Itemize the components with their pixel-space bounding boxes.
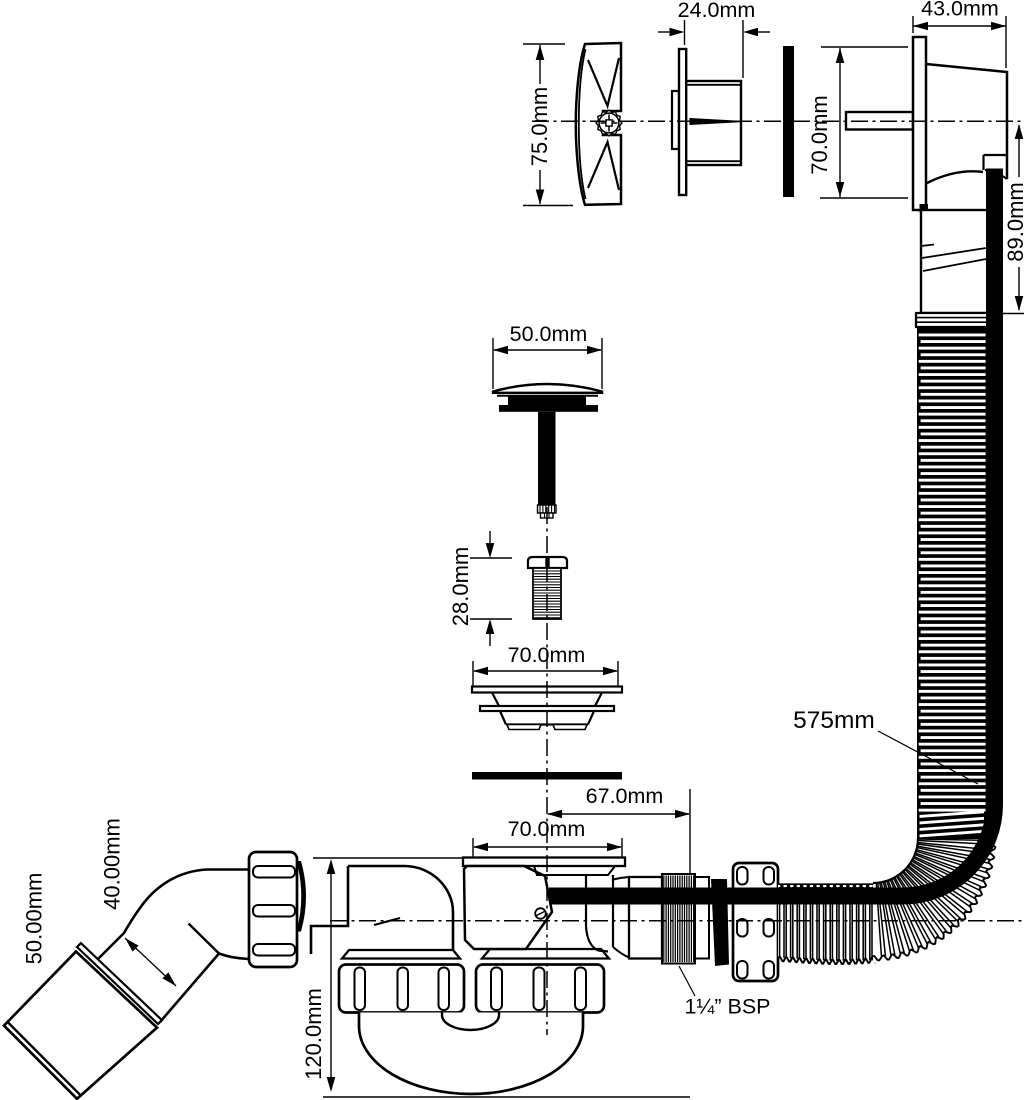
svg-text:67.0mm: 67.0mm (586, 784, 664, 808)
svg-text:43.0mm: 43.0mm (921, 0, 999, 21)
svg-text:575mm: 575mm (793, 707, 875, 734)
svg-text:1¼” BSP: 1¼” BSP (684, 995, 770, 1019)
svg-text:40.00mm: 40.00mm (100, 818, 125, 910)
svg-text:24.0mm: 24.0mm (678, 0, 756, 22)
svg-text:50.0mm: 50.0mm (510, 322, 588, 346)
svg-text:75.0mm: 75.0mm (527, 87, 552, 166)
svg-text:120.0mm: 120.0mm (301, 988, 326, 1080)
svg-text:89.0mm: 89.0mm (1003, 182, 1025, 261)
svg-text:28.0mm: 28.0mm (448, 547, 473, 626)
svg-text:70.0mm: 70.0mm (807, 95, 832, 174)
svg-text:50.00mm: 50.00mm (22, 873, 47, 965)
